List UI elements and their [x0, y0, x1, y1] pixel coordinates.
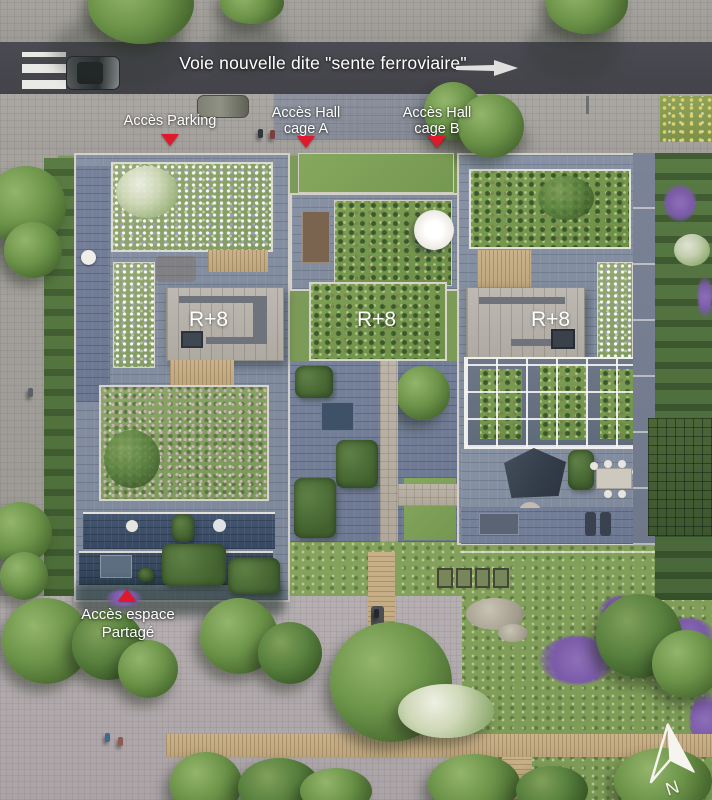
garden-path: [398, 484, 460, 506]
roof-lounge-furniture: [156, 256, 196, 282]
building-left-west-balconies: [76, 166, 110, 402]
tree: [258, 622, 322, 684]
white-flowering-tree: [116, 166, 178, 218]
tree: [4, 222, 62, 278]
white-flowering-tree: [674, 234, 710, 266]
access-hall-b-line2: cage B: [377, 121, 497, 137]
terrace-plants: [568, 450, 594, 490]
planter-bed: [456, 568, 472, 588]
street-lamp: [586, 96, 589, 114]
building-middle-level-label: R+8: [357, 308, 396, 332]
roof-walkway: [206, 337, 266, 344]
building-right-tower-roof: R+8: [466, 287, 585, 361]
site-plan: R+8 R+8 R+8: [0, 0, 712, 800]
garden-hedge: [162, 544, 226, 586]
planter-bed: [493, 568, 509, 588]
parasol: [414, 210, 454, 250]
roof-skylight: [181, 331, 203, 348]
courtyard-hedge: [336, 440, 378, 488]
shared-space-line1: Accès espace: [58, 606, 198, 624]
outdoor-dining-table: [596, 468, 632, 489]
dining-chair: [590, 462, 598, 470]
flower-bed: [660, 96, 712, 142]
garden-trellis: [648, 418, 712, 536]
access-parking-label: Accès Parking: [100, 113, 240, 129]
access-hall-a-line1: Accès Hall: [246, 105, 366, 121]
sun-lounger: [600, 512, 611, 536]
outdoor-kitchen: [479, 513, 519, 535]
glass-pergola: [464, 357, 648, 449]
pedestrian: [118, 737, 123, 746]
building-left-planter: [113, 262, 155, 368]
roof-walkway: [479, 297, 565, 304]
building-right-level-label: R+8: [531, 308, 570, 332]
access-hall-a-line2: cage A: [246, 121, 366, 137]
building-right-planter: [597, 262, 633, 358]
north-arrow-icon: [642, 722, 706, 784]
building-left-level-label: R+8: [189, 308, 228, 332]
access-hall-b-label: Accès Hall cage B: [377, 105, 497, 137]
access-hall-b-line1: Accès Hall: [377, 105, 497, 121]
terrace-plants: [138, 568, 154, 582]
purple-flower-patch: [664, 185, 696, 221]
pedestrian: [28, 388, 33, 397]
tree: [118, 640, 178, 698]
building-left-deck-south: [170, 360, 234, 388]
building-middle-entry-lawn: [298, 153, 454, 193]
pedestrian: [374, 609, 379, 618]
shared-space-label: Accès espace Partagé: [58, 606, 198, 642]
pedestrian: [105, 733, 110, 742]
balcony-round-table: [81, 250, 96, 265]
building-right-deck: [477, 250, 531, 288]
terrace-long-table: [100, 555, 132, 578]
terrace-plants: [172, 514, 194, 542]
shared-space-line2: Partagé: [58, 624, 198, 642]
dining-chair: [604, 460, 612, 468]
roof-long-table: [302, 211, 330, 263]
roof-shrub: [538, 176, 594, 220]
sun-lounger: [585, 512, 596, 536]
compass: N: [642, 722, 706, 800]
street-name-label: Voie nouvelle dite "sente ferroviaire": [178, 55, 468, 71]
planter-beds: [437, 568, 509, 588]
picnic-table: [321, 402, 354, 431]
garden-rock: [498, 624, 528, 642]
planter-bed: [475, 568, 491, 588]
roof-shrub: [104, 430, 160, 488]
building-middle-green-roof-main: R+8: [309, 282, 447, 361]
dining-chair: [618, 490, 626, 498]
terrace-round-table: [126, 520, 138, 532]
white-flowering-shrub: [398, 684, 494, 738]
road-direction-arrow: [456, 58, 520, 78]
planter-bed: [437, 568, 453, 588]
access-hall-b-marker: [428, 136, 446, 148]
building-left-tower-roof: R+8: [166, 287, 284, 361]
courtyard-tree: [396, 366, 450, 420]
roof-skylight: [551, 329, 575, 349]
building-left-deck-north: [208, 250, 268, 272]
shared-space-marker: [118, 589, 136, 601]
courtyard-hedge: [295, 366, 333, 398]
access-parking-marker: [161, 134, 179, 146]
terrace-round-table: [213, 519, 226, 532]
garden-path: [380, 361, 398, 542]
access-hall-a-label: Accès Hall cage A: [246, 105, 366, 137]
dining-chair: [618, 460, 626, 468]
access-hall-a-marker: [297, 136, 315, 148]
tree: [0, 552, 48, 600]
dining-chair: [604, 490, 612, 498]
pergola-glazing-grid: [466, 359, 646, 447]
courtyard-hedge: [294, 478, 336, 538]
garden-hedge: [228, 558, 280, 594]
purple-flower-patch: [698, 276, 712, 318]
